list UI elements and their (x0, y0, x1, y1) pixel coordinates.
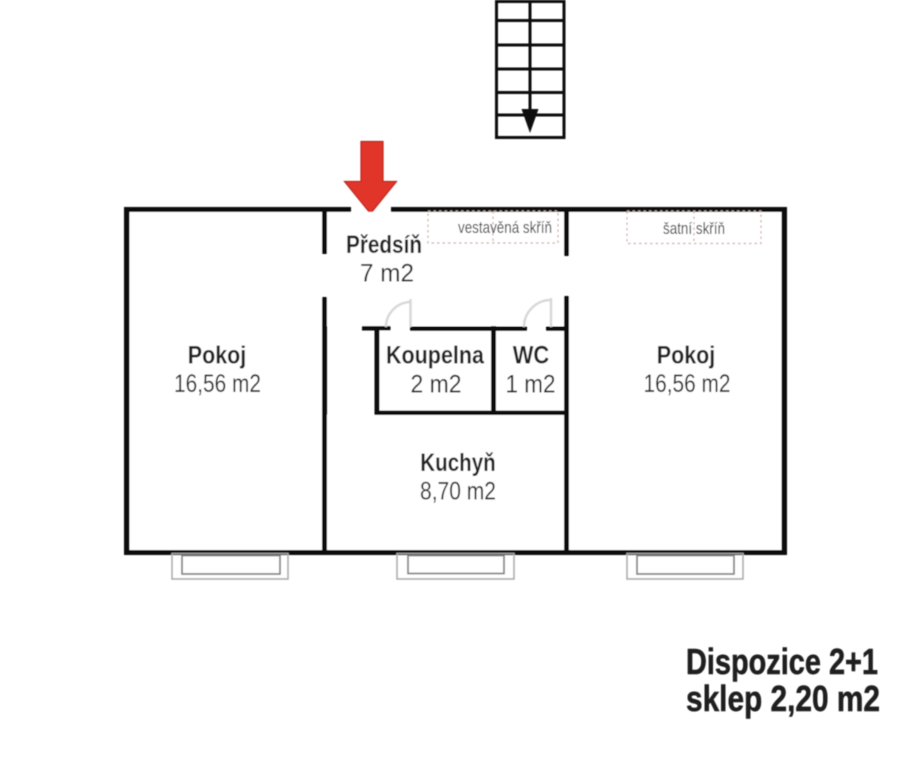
svg-text:1 m2: 1 m2 (506, 371, 556, 399)
svg-text:Kuchyň: Kuchyň (420, 449, 496, 477)
svg-text:Pokoj: Pokoj (657, 342, 716, 370)
svg-text:7 m2: 7 m2 (360, 260, 414, 288)
svg-text:2 m2: 2 m2 (411, 371, 462, 399)
svg-text:16,56 m2: 16,56 m2 (644, 370, 731, 398)
svg-text:Koupelna: Koupelna (386, 342, 485, 370)
svg-text:sklep 2,20 m2: sklep 2,20 m2 (686, 678, 880, 719)
svg-text:vestavěná skříň: vestavěná skříň (458, 218, 552, 237)
svg-text:šatní skříň: šatní skříň (663, 219, 725, 238)
svg-text:16,56 m2: 16,56 m2 (174, 370, 261, 398)
svg-text:Pokoj: Pokoj (188, 342, 247, 370)
svg-text:8,70 m2: 8,70 m2 (420, 478, 496, 506)
svg-text:Předsíň: Předsíň (346, 231, 422, 259)
svg-text:WC: WC (513, 342, 550, 370)
svg-text:Dispozice 2+1: Dispozice 2+1 (686, 641, 878, 682)
